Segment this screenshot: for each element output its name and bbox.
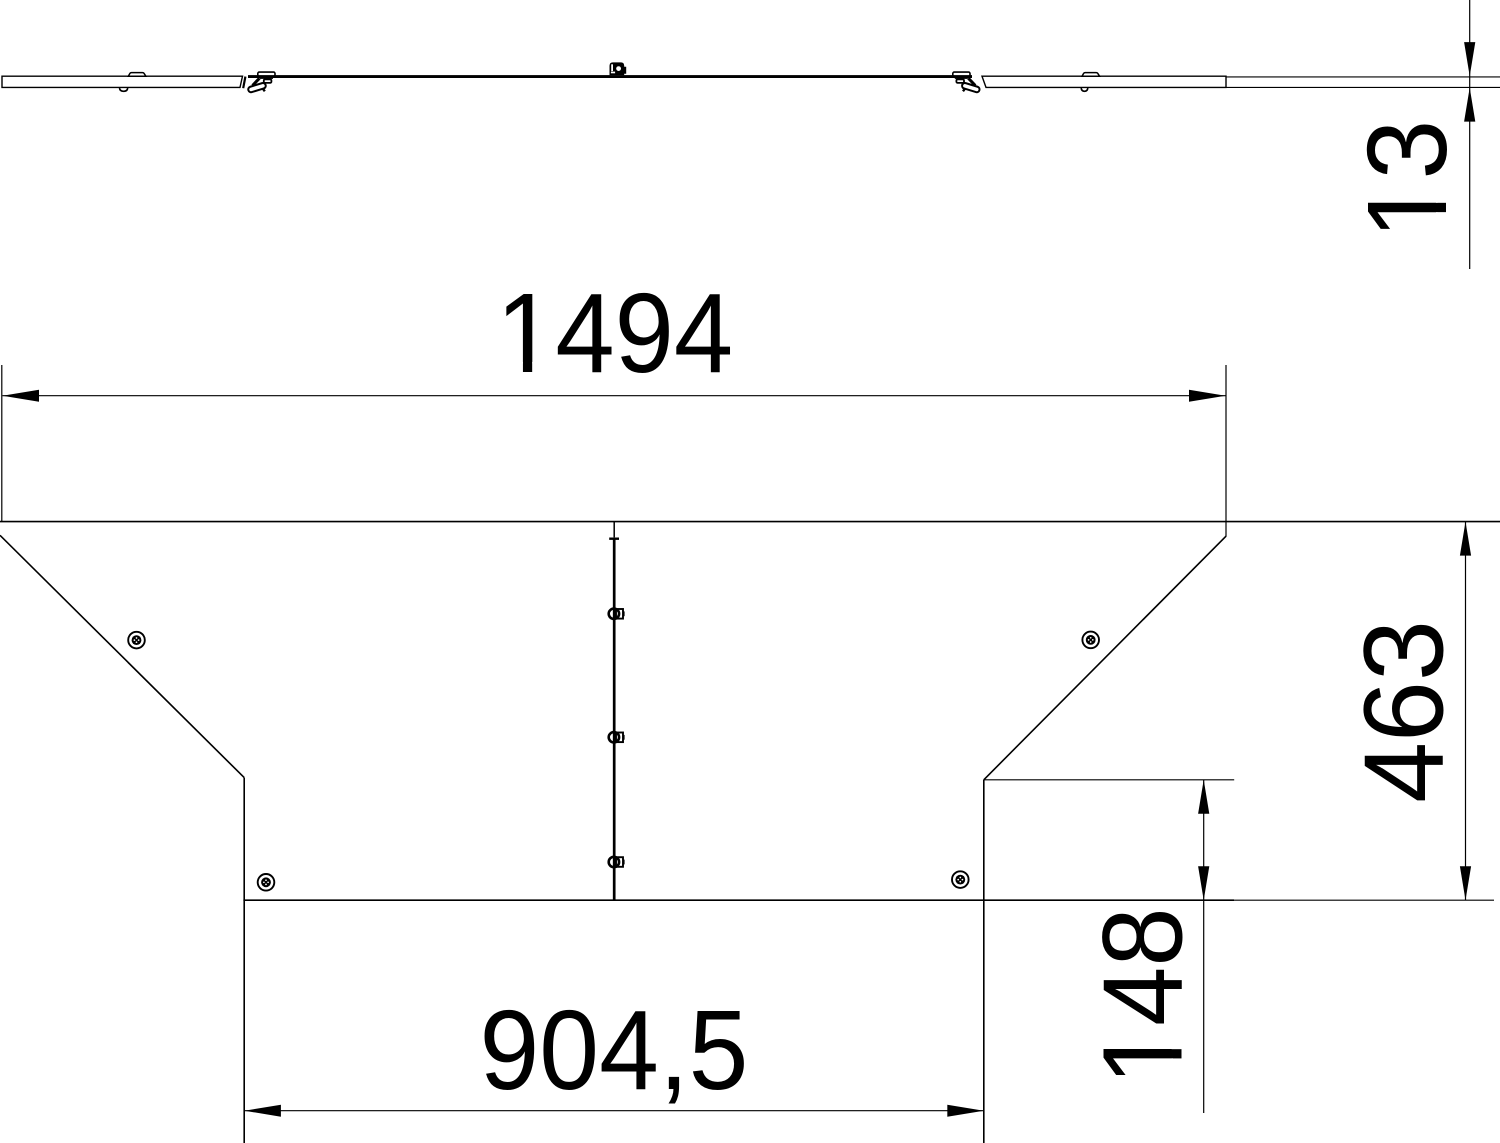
svg-text:13: 13 bbox=[1344, 120, 1470, 239]
svg-text:463: 463 bbox=[1340, 620, 1467, 803]
svg-text:1494: 1494 bbox=[496, 271, 733, 397]
svg-text:148: 148 bbox=[1081, 907, 1206, 1085]
svg-text:904,5: 904,5 bbox=[480, 988, 749, 1114]
